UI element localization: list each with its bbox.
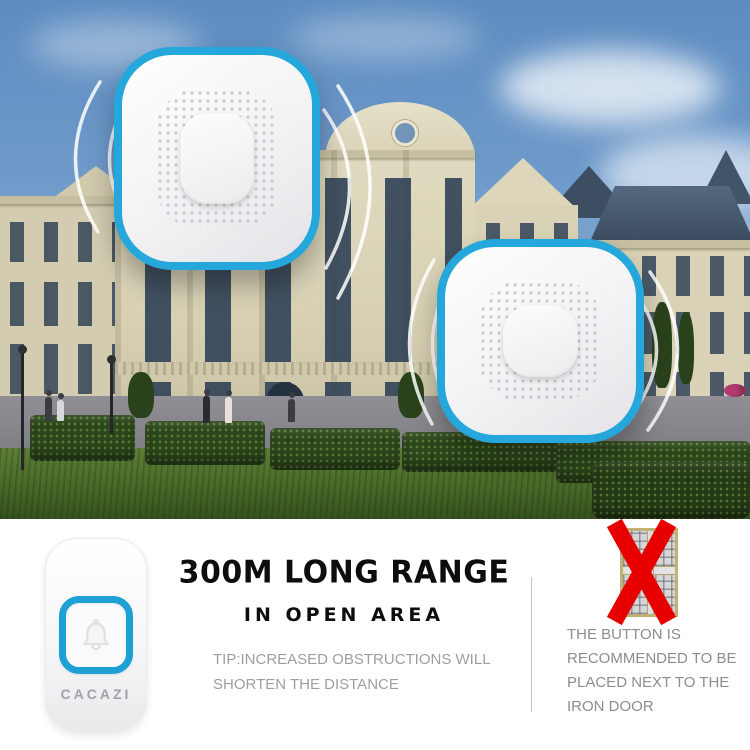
warning-line-3: PLACED NEXT TO THE xyxy=(567,671,737,695)
receiver-front-panel xyxy=(180,113,254,204)
tip-line-1: TIP:INCREASED OBSTRUCTIONS WILL xyxy=(213,647,523,672)
doorbell-button: CACAZI xyxy=(45,538,147,732)
headline-block: 300M LONG RANGE IN OPEN AREA xyxy=(168,555,520,626)
bell-icon xyxy=(76,615,116,655)
scene-photo xyxy=(0,0,750,519)
warning-line-2: RECOMMENDED TO BE xyxy=(567,647,737,671)
doorbell-receiver-2 xyxy=(437,239,644,443)
product-image: CACAZI 300M LONG RANGE IN OPEN AREA TIP:… xyxy=(0,0,750,750)
vertical-divider xyxy=(531,577,532,712)
warning-text: THE BUTTON IS RECOMMENDED TO BE PLACED N… xyxy=(567,623,737,719)
warning-line-4: IRON DOOR xyxy=(567,695,737,719)
headline-subtitle: IN OPEN AREA xyxy=(168,604,520,626)
info-panel: CACAZI 300M LONG RANGE IN OPEN AREA TIP:… xyxy=(0,519,750,750)
tip-text: TIP:INCREASED OBSTRUCTIONS WILL SHORTEN … xyxy=(213,647,523,697)
tip-line-2: SHORTEN THE DISTANCE xyxy=(213,672,523,697)
doorbell-receiver-1 xyxy=(114,47,320,270)
receiver-front-panel xyxy=(503,305,578,377)
warning-line-1: THE BUTTON IS xyxy=(567,623,737,647)
signal-waves-icon xyxy=(0,0,750,519)
headline-title: 300M LONG RANGE xyxy=(168,554,520,591)
red-x-icon xyxy=(603,521,679,622)
brand-label: CACAZI xyxy=(46,686,146,702)
doorbell-button-ring xyxy=(59,596,133,674)
